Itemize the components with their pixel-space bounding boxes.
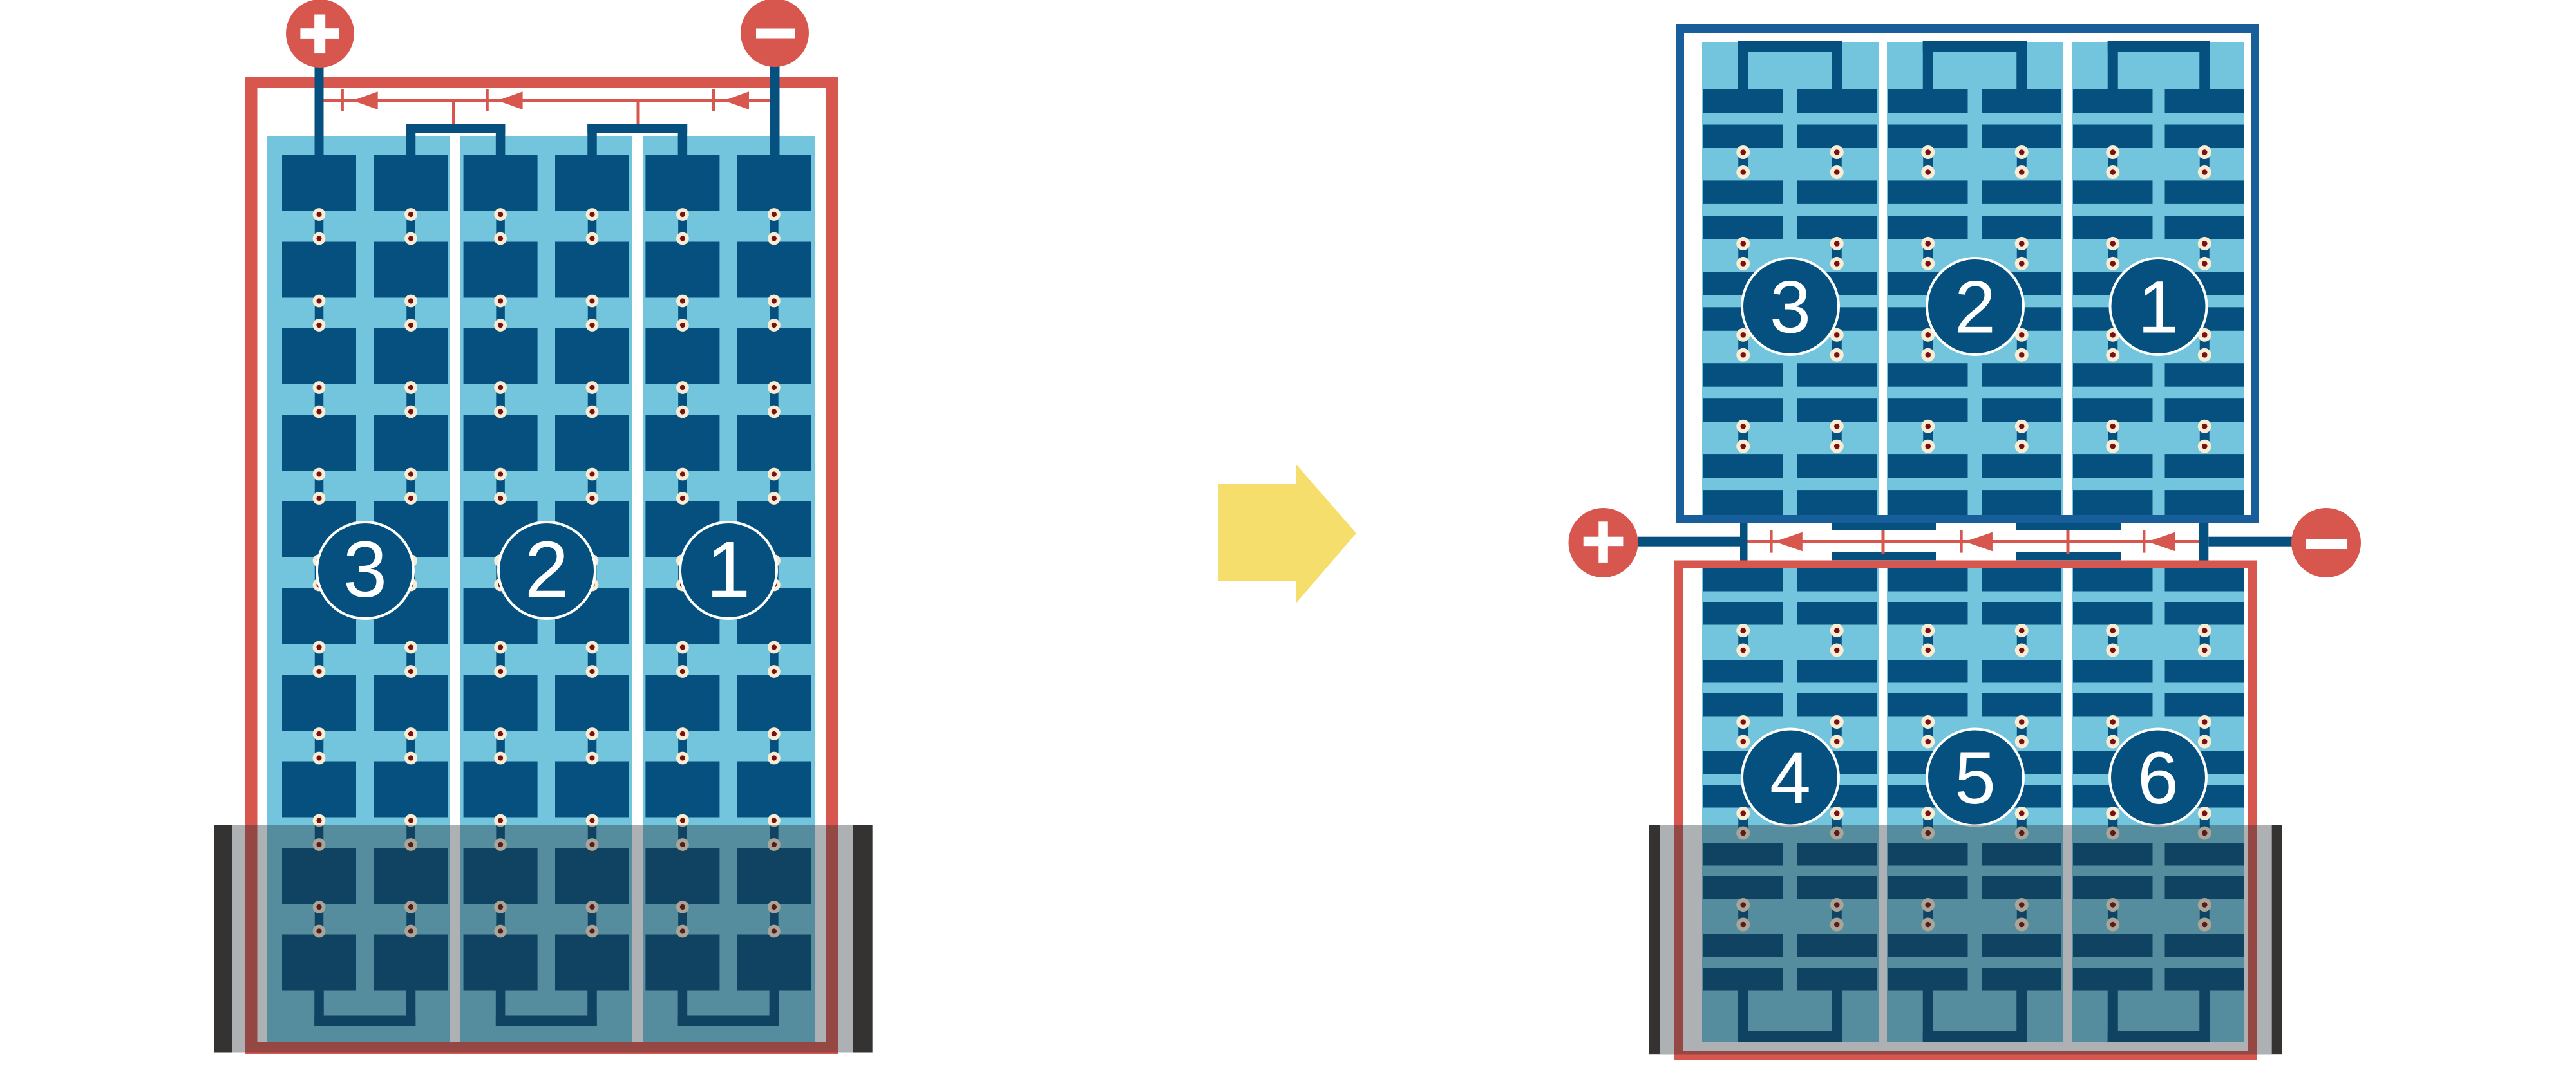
svg-text:5: 5 (1955, 737, 1996, 820)
svg-text:1: 1 (2138, 266, 2179, 348)
svg-text:3: 3 (1770, 266, 1811, 348)
svg-text:3: 3 (343, 526, 387, 614)
svg-text:1: 1 (706, 526, 750, 614)
svg-text:2: 2 (525, 526, 569, 614)
svg-text:2: 2 (1955, 266, 1996, 348)
svg-text:4: 4 (1770, 737, 1811, 820)
svg-text:6: 6 (2137, 737, 2179, 820)
